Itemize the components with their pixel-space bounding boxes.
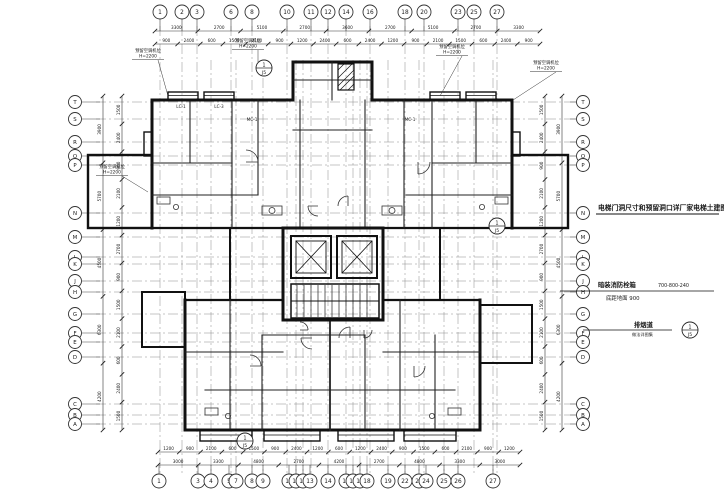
- ac-label-height: H=2200: [443, 50, 461, 56]
- dimension-value: 4500: [556, 257, 561, 268]
- dimension-value: 1200: [163, 446, 174, 451]
- floor-plan-drawing: 1236810111214161820232527134578910111213…: [0, 0, 724, 500]
- detail-sheet: J5: [242, 443, 247, 449]
- grid-bubble-label: G: [581, 312, 585, 318]
- dimension-value: 900: [411, 38, 419, 43]
- dimension-value: 2100: [206, 446, 217, 451]
- dimension-value: 4800: [253, 459, 264, 464]
- dimension-value: 900: [539, 161, 544, 169]
- detail-number: 1: [243, 436, 246, 442]
- dimension-value: 2700: [293, 459, 304, 464]
- grid-bubble-label: K: [581, 262, 585, 268]
- grid-bubble-label: J: [73, 279, 76, 285]
- dimension-value: 2400: [116, 132, 121, 143]
- detail-sheet: J5: [261, 70, 266, 76]
- dimension-value: 1500: [539, 104, 544, 115]
- grid-bubble-label: 23: [454, 10, 462, 16]
- ac-label-height: H=2200: [537, 66, 555, 72]
- dimension-value: 1200: [116, 216, 121, 227]
- door-swing: [414, 366, 425, 377]
- window-tag: LC-1: [176, 104, 186, 109]
- grid-bubble-label: 1: [158, 10, 162, 16]
- grid-bubble-label: M: [581, 235, 586, 241]
- grid-bubble-label: 8: [250, 479, 254, 485]
- grid-bubble-label: E: [581, 340, 585, 346]
- grid-bubble-label: D: [581, 355, 585, 361]
- dimension-value: 2400: [116, 383, 121, 394]
- hydrant-note-sub: 底距地面 900: [606, 294, 640, 302]
- dimension-value: 900: [186, 446, 194, 451]
- dimension-value: 900: [399, 446, 407, 451]
- grid-bubble-label: R: [581, 140, 585, 146]
- dimension-value: 600: [116, 356, 121, 364]
- dimension-value: 6300: [556, 324, 561, 335]
- grid-bubble-label: T: [72, 100, 77, 106]
- dimension-value: 1200: [355, 446, 366, 451]
- ac-label-height: H=2200: [239, 44, 257, 50]
- leader-line: [158, 60, 168, 96]
- detail-markers: 1J51J51J51J5: [237, 60, 698, 449]
- grid-bubble-label: 25: [440, 479, 448, 485]
- dimension-value: 1500: [116, 410, 121, 421]
- grid-bubble-label: 27: [489, 479, 497, 485]
- door-swing: [300, 322, 308, 330]
- dimension-value: 2700: [116, 243, 121, 254]
- dimension-value: 1200: [504, 446, 515, 451]
- dimension-value: 5700: [97, 191, 102, 202]
- grid-bubble-label: 24: [422, 479, 430, 485]
- dimension-value: 6300: [97, 324, 102, 335]
- dimension-value: 2100: [116, 188, 121, 199]
- dimension-value: 2400: [320, 38, 331, 43]
- ac-label: 预留空调机位: [99, 163, 125, 170]
- dimension-value: 1500: [116, 104, 121, 115]
- ac-label: 预留空调机位: [135, 47, 161, 54]
- grid-lines: 1236810111214161820232527134578910111213…: [69, 5, 590, 488]
- dimension-value: 2400: [291, 446, 302, 451]
- dimension-value: 1500: [455, 38, 466, 43]
- grid-bubble-label: 12: [324, 10, 332, 16]
- grid-bubble-label: E: [73, 340, 77, 346]
- dimension-value: 3900: [556, 124, 561, 135]
- dimension-value: 2400: [376, 446, 387, 451]
- dimension-value: 2400: [539, 383, 544, 394]
- dimension-value: 4200: [97, 391, 102, 402]
- dimension-value: 4800: [414, 459, 425, 464]
- grid-bubble-label: 25: [470, 10, 478, 16]
- dimension-value: 2700: [214, 25, 225, 30]
- dimension-value: 3900: [97, 124, 102, 135]
- grid-bubble-label: 3: [196, 479, 200, 485]
- dimension-value: 600: [229, 446, 237, 451]
- grid-bubble-label: R: [73, 140, 77, 146]
- door-tag: MC-1: [405, 117, 416, 122]
- grid-bubble-label: 1: [157, 479, 161, 485]
- dimension-value: 900: [276, 38, 284, 43]
- dimension-value: 2700: [539, 243, 544, 254]
- leader-line: [513, 72, 556, 100]
- dimension-value: 600: [208, 38, 216, 43]
- dimension-value: 3300: [171, 25, 182, 30]
- dimension-value: 1500: [116, 299, 121, 310]
- dimension-value: 1200: [312, 446, 323, 451]
- grid-bubble-label: 18: [401, 10, 409, 16]
- grid-bubble-label: 14: [342, 10, 350, 16]
- door-swing: [338, 196, 348, 206]
- grid-bubble-label: N: [581, 211, 585, 217]
- dimension-value: 2100: [539, 188, 544, 199]
- dimension-value: 900: [116, 273, 121, 281]
- hydrant-note-label: 暗装消防栓箱: [598, 280, 636, 289]
- grid-bubble-label: 3: [195, 10, 199, 16]
- dimension-value: 2400: [184, 38, 195, 43]
- ac-label-height: H=2200: [103, 170, 121, 176]
- dimension-value: 900: [525, 38, 533, 43]
- grid-bubble-label: 22: [401, 479, 409, 485]
- dimension-value: 900: [484, 446, 492, 451]
- dimension-value: 2400: [539, 132, 544, 143]
- grid-bubble-label: 16: [366, 10, 374, 16]
- dimension-value: 600: [441, 446, 449, 451]
- grid-bubble-label: 7: [234, 479, 238, 485]
- dimension-value: 2700: [470, 25, 481, 30]
- dimension-value: 900: [271, 446, 279, 451]
- dimension-value: 600: [539, 356, 544, 364]
- grid-bubble-label: 9: [261, 479, 265, 485]
- ac-label: 预留空调机位: [439, 43, 465, 50]
- grid-bubble-label: K: [73, 262, 77, 268]
- grid-bubble-label: 26: [454, 479, 462, 485]
- detail-sheet: J5: [687, 332, 692, 338]
- door-swing: [339, 327, 350, 338]
- dimension-value: 5700: [556, 191, 561, 202]
- detail-number: 1: [688, 325, 691, 331]
- ac-label: 预留空调机位: [533, 59, 559, 66]
- grid-bubble-label: T: [580, 100, 585, 106]
- detail-sheet: J5: [494, 228, 499, 234]
- grid-bubble-label: 6: [229, 10, 233, 16]
- bathroom-kitchen-fixtures: [157, 197, 508, 419]
- dimension-value: 5100: [257, 25, 268, 30]
- dimension-value: 2100: [539, 327, 544, 338]
- grid-bubble-label: 10: [283, 10, 291, 16]
- grid-bubble-label: 8: [250, 10, 254, 16]
- grid-bubble-label: N: [73, 211, 77, 217]
- flue-note-sub: 做法详图集: [632, 331, 654, 338]
- dimension-value: 600: [335, 446, 343, 451]
- dimension-value: 2100: [433, 38, 444, 43]
- grid-bubble-label: C: [581, 402, 585, 408]
- ac-label: 预留空调机位: [235, 37, 261, 44]
- detail-number: 1: [495, 221, 498, 227]
- dimension-value: 4200: [556, 391, 561, 402]
- dimension-value: 3300: [513, 25, 524, 30]
- door-swing: [418, 162, 430, 174]
- window-tag: LC-3: [214, 104, 224, 109]
- dimension-value: 900: [162, 38, 170, 43]
- hydrant-note-size: 700-800-240: [658, 283, 689, 289]
- door-tag: MC-1: [247, 117, 258, 122]
- grid-bubble-label: J: [581, 279, 584, 285]
- ac-unit-labels: 预留空调机位H=2200预留空调机位H=2200预留空调机位H=2200预留空调…: [96, 37, 562, 192]
- detail-number: 1: [262, 63, 265, 69]
- ac-label-height: H=2200: [139, 54, 157, 60]
- grid-bubble-label: 2: [180, 10, 184, 16]
- dimension-value: 4200: [334, 459, 345, 464]
- dimension-value: 2400: [501, 38, 512, 43]
- dimension-value: 1500: [539, 299, 544, 310]
- dimension-value: 3600: [342, 25, 353, 30]
- grid-bubble-label: H: [73, 290, 77, 296]
- door-swing: [301, 338, 312, 349]
- grid-bubble-label: 18: [363, 479, 371, 485]
- dimension-value: 2700: [374, 459, 385, 464]
- leader-line: [122, 176, 148, 192]
- grid-bubble-label: M: [73, 235, 78, 241]
- grid-bubble-label: 13: [306, 479, 314, 485]
- grid-bubble-label: 14: [324, 479, 332, 485]
- dimension-value: 1500: [419, 446, 430, 451]
- grid-bubble-label: 4: [209, 479, 213, 485]
- grid-bubble-label: A: [73, 422, 77, 428]
- dimension-value: 3000: [173, 459, 184, 464]
- grid-bubble-label: C: [73, 402, 77, 408]
- dimension-value: 1200: [387, 38, 398, 43]
- grid-bubble-label: 20: [420, 10, 428, 16]
- dimension-value: 2700: [299, 25, 310, 30]
- dimension-value: 2400: [365, 38, 376, 43]
- dimension-value: 2100: [461, 446, 472, 451]
- grid-bubble-label: 11: [307, 10, 315, 16]
- grid-bubble-label: S: [581, 117, 585, 123]
- elevator-core: [283, 228, 383, 320]
- grid-bubble-label: 19: [384, 479, 392, 485]
- grid-bubble-label: D: [73, 355, 77, 361]
- grid-bubble-label: A: [581, 422, 585, 428]
- door-swing: [308, 206, 318, 216]
- dimension-value: 600: [479, 38, 487, 43]
- dimension-value: 1200: [539, 216, 544, 227]
- grid-bubble-label: S: [73, 117, 77, 123]
- dimension-value: 1500: [539, 410, 544, 421]
- dimension-value: 3000: [495, 459, 506, 464]
- dimension-value: 4500: [97, 257, 102, 268]
- dimension-value: 3300: [454, 459, 465, 464]
- dimension-value: 5100: [428, 25, 439, 30]
- dimension-value: 2100: [116, 327, 121, 338]
- dimension-value: 3300: [213, 459, 224, 464]
- elevator-note: 电梯门洞尺寸和预留洞口详厂家电梯土建图: [598, 203, 724, 212]
- dimension-value: 900: [539, 273, 544, 281]
- door-swing: [250, 355, 261, 366]
- grid-bubble-label: G: [73, 312, 77, 318]
- dimension-value: 2700: [385, 25, 396, 30]
- cad-floor-plan-sheet: 1236810111214161820232527134578910111213…: [0, 0, 724, 500]
- dimension-value: 1200: [297, 38, 308, 43]
- flue-note-label: 排烟道: [634, 320, 654, 329]
- grid-bubble-label: 27: [493, 10, 501, 16]
- leader-line: [440, 56, 462, 96]
- dimension-value: 600: [344, 38, 352, 43]
